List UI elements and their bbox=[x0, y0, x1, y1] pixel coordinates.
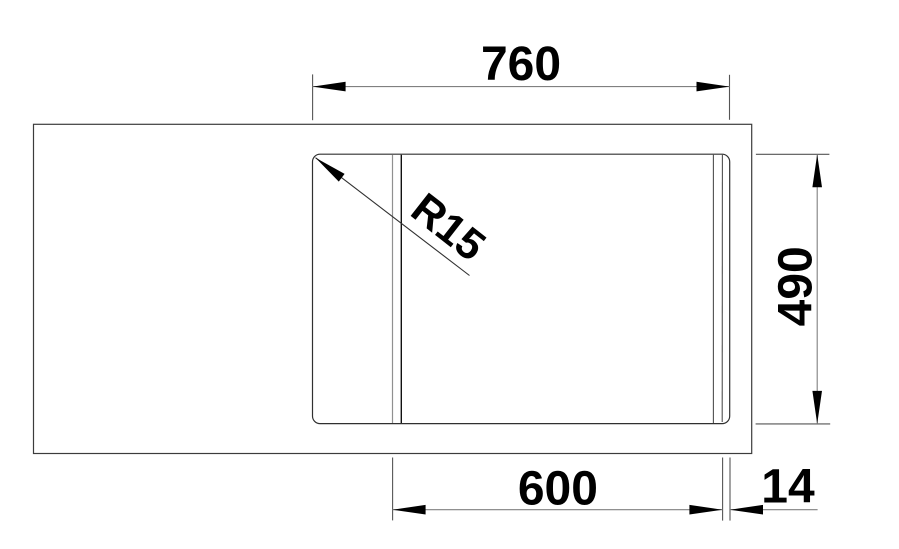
svg-text:760: 760 bbox=[481, 38, 561, 91]
svg-text:14: 14 bbox=[761, 460, 815, 513]
svg-text:600: 600 bbox=[518, 462, 598, 515]
svg-text:490: 490 bbox=[769, 246, 822, 326]
